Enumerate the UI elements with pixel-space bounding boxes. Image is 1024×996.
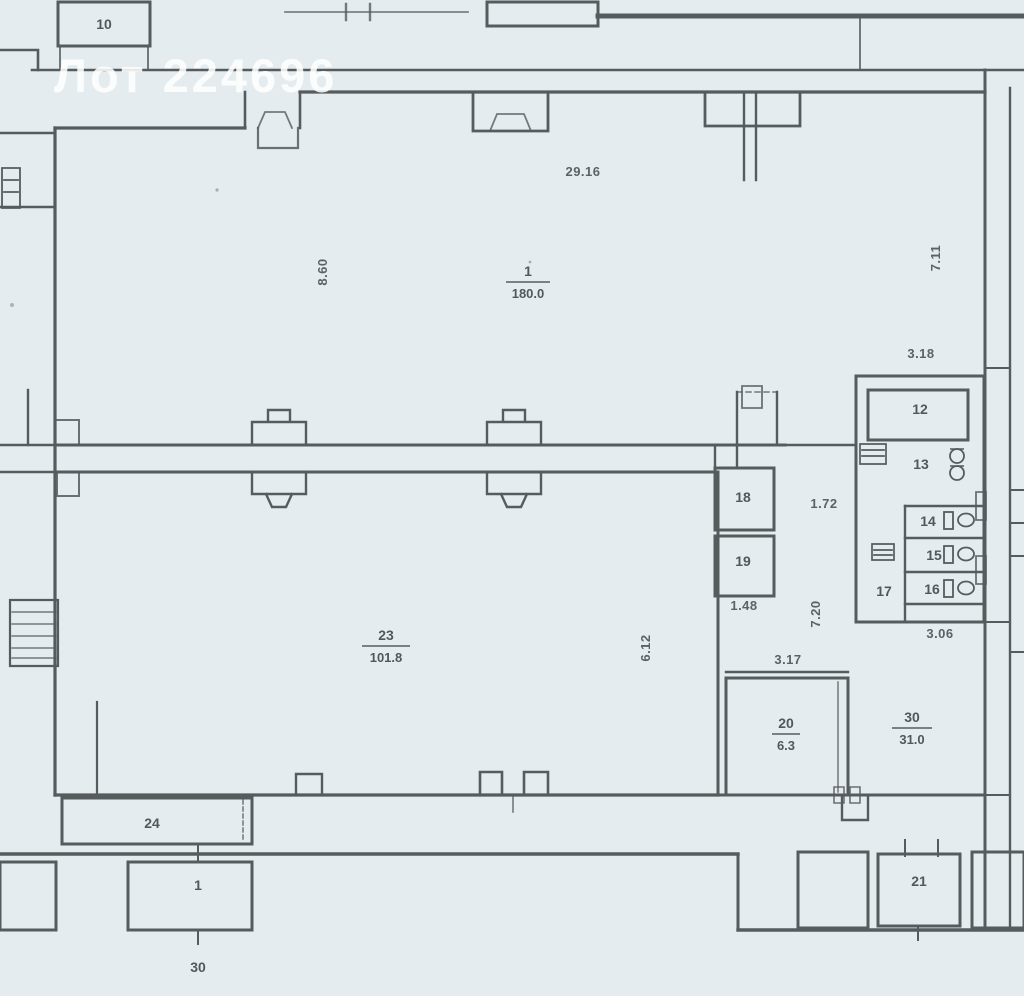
room-label-13: 13 — [913, 456, 929, 472]
dimension-7-20: 7.20 — [808, 600, 823, 627]
dimension-29-16: 29.16 — [565, 164, 600, 179]
room-label-18: 18 — [735, 489, 751, 505]
dimension-1-48: 1.48 — [730, 598, 757, 613]
floorplan-canvas: 29.16 8.60 7.11 3.18 1.72 7.20 1.48 3.17… — [0, 0, 1024, 996]
svg-text:6.3: 6.3 — [777, 738, 795, 753]
dimension-8-60: 8.60 — [315, 258, 330, 285]
watermark-text: Лот 224696 — [54, 49, 337, 102]
dimension-3-17: 3.17 — [774, 652, 801, 667]
room-label-16: 16 — [924, 581, 940, 597]
dimension-3-18: 3.18 — [907, 346, 934, 361]
svg-text:23: 23 — [378, 627, 394, 643]
dimension-3-06: 3.06 — [926, 626, 953, 641]
dimension-7-11: 7.11 — [928, 245, 943, 272]
room-label-30-entry: 30 — [190, 959, 206, 975]
room-label-21: 21 — [911, 873, 927, 889]
room-label-15: 15 — [926, 547, 942, 563]
room-label-1-porch: 1 — [194, 877, 202, 893]
svg-text:31.0: 31.0 — [899, 732, 924, 747]
paper-tint — [0, 0, 1024, 996]
room-label-14: 14 — [920, 513, 936, 529]
room-label-10: 10 — [96, 16, 112, 32]
room-label-24: 24 — [144, 815, 160, 831]
dimension-6-12: 6.12 — [638, 634, 653, 661]
floorplan-page: 29.16 8.60 7.11 3.18 1.72 7.20 1.48 3.17… — [0, 0, 1024, 996]
room-label-17: 17 — [876, 583, 892, 599]
svg-text:180.0: 180.0 — [512, 286, 545, 301]
room-label-19: 19 — [735, 553, 751, 569]
dimension-1-72: 1.72 — [810, 496, 837, 511]
svg-text:30: 30 — [904, 709, 920, 725]
svg-text:101.8: 101.8 — [370, 650, 403, 665]
svg-text:1: 1 — [524, 263, 532, 279]
svg-text:20: 20 — [778, 715, 794, 731]
room-label-12: 12 — [912, 401, 928, 417]
